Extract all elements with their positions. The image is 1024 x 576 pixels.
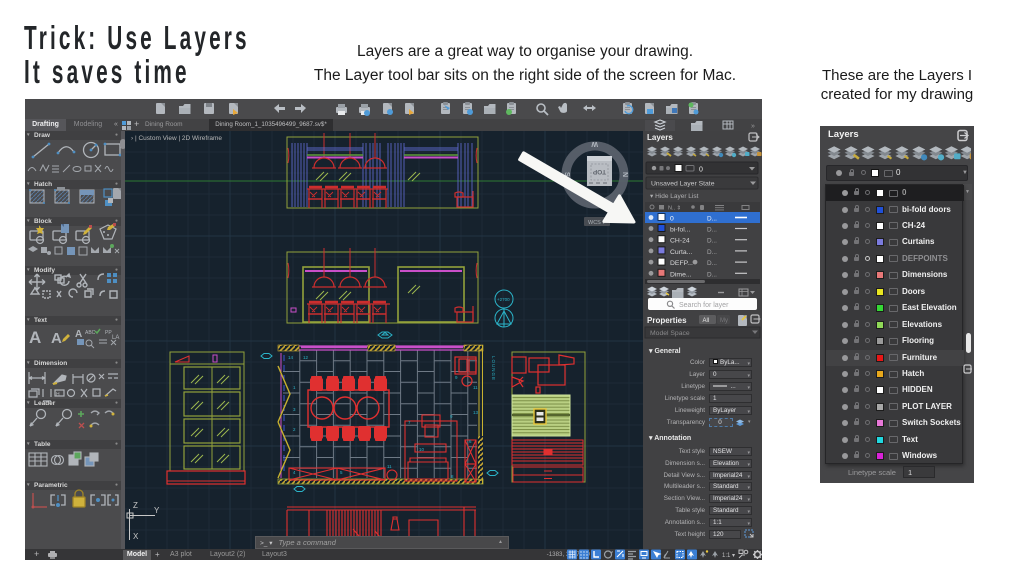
- svg-text:A: A: [29, 328, 41, 347]
- svg-text:Search for layer: Search for layer: [679, 302, 729, 309]
- svg-text:DEFP...: DEFP...: [670, 260, 693, 267]
- svg-text:bi-fol...: bi-fol...: [670, 227, 691, 234]
- svg-text:X: X: [133, 532, 139, 541]
- svg-text:1:1 ▾: 1:1 ▾: [722, 553, 735, 559]
- svg-text:Dime...: Dime...: [670, 271, 692, 278]
- svg-text:11: 11: [473, 385, 478, 390]
- svg-text:D...: D...: [707, 271, 717, 278]
- svg-text:All: All: [703, 318, 710, 324]
- svg-text:Properties: Properties: [647, 316, 687, 325]
- svg-text:Layers: Layers: [647, 133, 673, 142]
- svg-text:My: My: [720, 318, 728, 324]
- svg-text:Unsaved Layer State: Unsaved Layer State: [651, 181, 715, 188]
- svg-text:Curta...: Curta...: [670, 249, 692, 256]
- svg-text:D...: D...: [707, 227, 717, 234]
- svg-text:13: 13: [473, 410, 479, 415]
- svg-text:LOUNGE: LOUNGE: [491, 356, 496, 381]
- svg-text:D...: D...: [707, 216, 717, 223]
- svg-text:D...: D...: [707, 260, 717, 267]
- svg-text:A: A: [51, 330, 62, 347]
- svg-text:N.. ⇕: N.. ⇕: [668, 205, 681, 212]
- svg-text:Y: Y: [154, 506, 160, 515]
- svg-text:› | Custom View | 2D Wiref: › | Custom View | 2D Wireframe: [131, 135, 222, 142]
- svg-text:10: 10: [419, 447, 425, 452]
- svg-text:▾ General: ▾ General: [648, 348, 681, 355]
- svg-text:+2700: +2700: [497, 297, 510, 302]
- svg-text:11: 11: [387, 464, 392, 469]
- svg-text:»: »: [751, 123, 755, 130]
- svg-text:0: 0: [670, 216, 674, 223]
- svg-text:12: 12: [303, 355, 309, 360]
- svg-text:ABC: ABC: [85, 330, 96, 336]
- svg-text:Z: Z: [133, 501, 138, 510]
- svg-text:▾ Hide Layer List: ▾ Hide Layer List: [650, 193, 699, 200]
- svg-text:14: 14: [288, 355, 294, 360]
- svg-text:Model Space: Model Space: [650, 330, 690, 337]
- svg-text:H: H: [56, 392, 60, 398]
- svg-text:D...: D...: [707, 249, 717, 256]
- svg-text:CH-24: CH-24: [670, 238, 690, 245]
- svg-text:A: A: [75, 329, 82, 340]
- svg-text:D...: D...: [707, 238, 717, 245]
- svg-text:0: 0: [699, 167, 703, 174]
